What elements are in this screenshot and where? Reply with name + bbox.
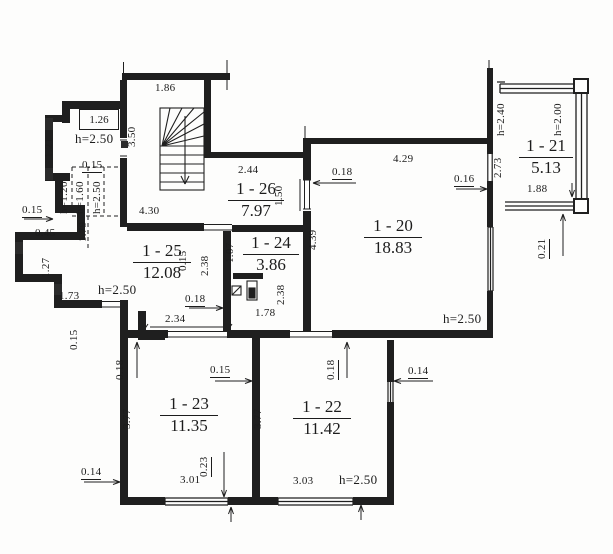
dim-r26-wall: 0.18	[332, 166, 352, 180]
dim-stair-width: 1.86	[155, 82, 175, 94]
dim-bottom-wall: 0.14	[81, 466, 101, 480]
dim-r25-door: 0.18	[185, 293, 205, 307]
dim-porch-width: 1.73	[59, 290, 79, 302]
dim-entry-height: h=2.50	[75, 133, 113, 145]
dim-left-side: 1.27	[40, 258, 53, 278]
room-id: 1 - 21	[519, 137, 573, 158]
dim-r23-wall: 0.15	[210, 364, 230, 378]
dim-r22-door: 0.18	[325, 360, 339, 380]
room-area: 18.83	[364, 238, 422, 258]
dim-r22-width: 3.03	[293, 475, 313, 487]
dim-hall-length: 4.30	[139, 205, 159, 217]
room-id: 1 - 23	[160, 395, 218, 416]
dim-closet-h1: h=1.20	[58, 181, 71, 214]
dim-r25-wall2: 0.15	[68, 330, 81, 350]
dim-r20-height: h=2.50	[443, 313, 481, 325]
dim-balc-width: 1.88	[527, 183, 547, 195]
dim-r23-door: 0.18	[114, 360, 128, 380]
dim-closet-h3: h=2.50	[91, 181, 104, 214]
dim-r23-side: 3.77	[121, 409, 134, 429]
room-area: 11.42	[293, 419, 351, 439]
dim-r20-side: 4.39	[307, 230, 320, 250]
dim-stair-depth: 3.50	[126, 127, 139, 147]
room-id: 1 - 22	[293, 398, 351, 419]
entry-shelf-box: 1.26	[79, 109, 119, 130]
dim-closet-depth: 1.79	[77, 222, 90, 242]
dim-r25-side: 2.38	[199, 256, 212, 276]
dim-r20-wall: 0.16	[454, 173, 474, 187]
dim-r24-door: 1.07	[224, 243, 237, 263]
room-area: 5.13	[519, 158, 573, 178]
dim-r24-side: 2.38	[275, 285, 288, 305]
dim-r22-side: 3.77	[252, 409, 265, 429]
dim-balc-h1: h=2.40	[495, 103, 508, 136]
dim-r20-width: 4.29	[393, 153, 413, 165]
dim-r22-height: h=2.50	[339, 474, 377, 486]
dim-closet-h2: h=1.60	[74, 181, 87, 214]
room-label-1-24: 1 - 24 3.86	[243, 234, 299, 274]
dim-r25-width: 2.34	[165, 313, 185, 325]
dim-left-step: 0.15	[22, 204, 42, 218]
room-label-1-23: 1 - 23 11.35	[160, 395, 218, 435]
windows	[165, 154, 493, 505]
dim-entry-wall: 0.15	[82, 159, 102, 173]
dim-r23-pier: 0.23	[198, 457, 212, 477]
bathroom-fixtures	[232, 281, 257, 300]
dim-balc-h2: h=2.00	[552, 103, 565, 136]
floor-plan: 1 - 26 7.97 1 - 20 18.83 1 - 21 5.13 1 -…	[0, 0, 613, 554]
dim-r22-wall: 0.14	[408, 365, 428, 379]
room-id: 1 - 24	[243, 234, 299, 255]
dim-balc-side: 2.73	[492, 158, 505, 178]
dim-balc-wall: 0.21	[536, 239, 550, 259]
staircase	[160, 108, 204, 190]
dim-r25-wall: 0.15	[177, 251, 190, 271]
dim-r24-width: 1.78	[255, 307, 275, 319]
room-label-1-20: 1 - 20 18.83	[364, 217, 422, 257]
room-area: 11.35	[160, 416, 218, 436]
room-area: 3.86	[243, 255, 299, 275]
room-label-1-22: 1 - 22 11.42	[293, 398, 351, 438]
room-id: 1 - 20	[364, 217, 422, 238]
dim-lobby-height: h=2.50	[98, 284, 136, 296]
dim-r26-width: 2.44	[238, 164, 258, 176]
dim-r26-door: 1.50	[273, 186, 286, 206]
room-label-1-21: 1 - 21 5.13	[519, 137, 573, 177]
dim-left-recess: 0.45	[35, 227, 55, 239]
dim-entry-shelf: 1.26	[89, 114, 108, 126]
dim-entry-side: 1.21	[43, 138, 56, 158]
